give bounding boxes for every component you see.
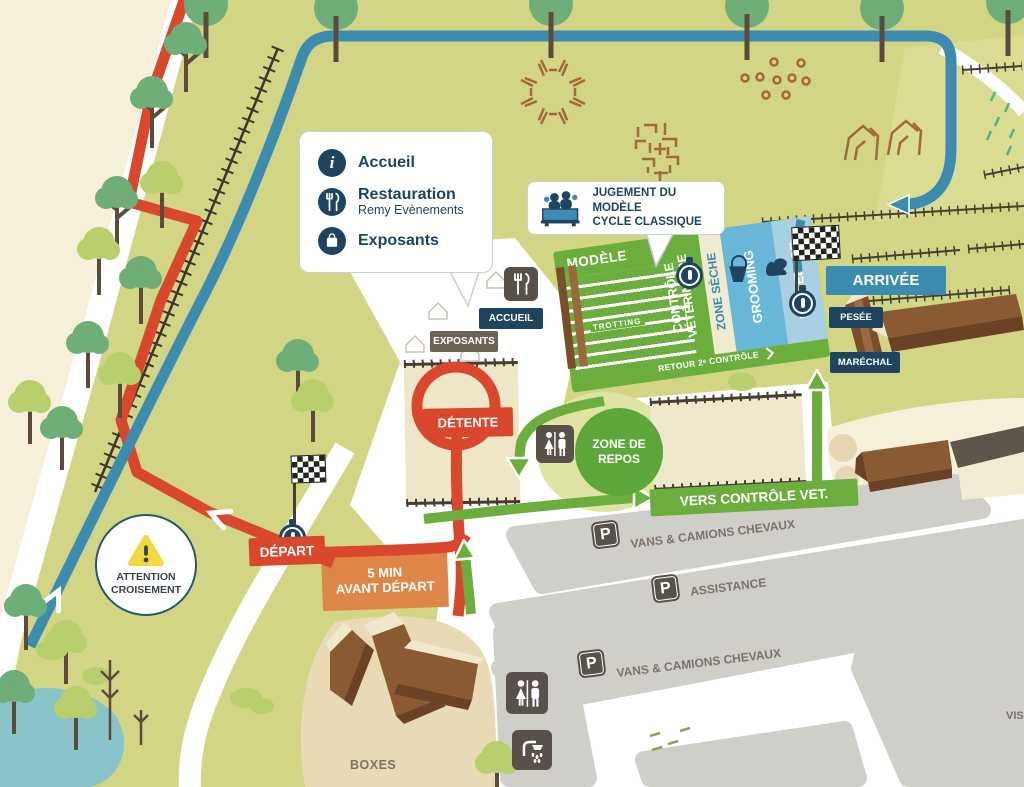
- legend-bubble: i Accueil Restauration Remy Evènements: [299, 131, 493, 273]
- arrivee-banner: ARRIVÉE: [826, 266, 946, 295]
- legend-item-exposants: Exposants: [318, 227, 492, 255]
- pesee-banner: PESÉE: [829, 307, 883, 328]
- legend-restauration-label: Restauration: [358, 187, 464, 204]
- accueil-banner: ACCUEIL: [479, 308, 543, 329]
- legend-item-accueil: i Accueil: [318, 149, 492, 177]
- parking-icon-3: P: [576, 648, 606, 678]
- detente-label: DÉTENTE: [438, 414, 499, 430]
- parking-icon-2: P: [650, 573, 680, 603]
- zone-repos-line1: ZONE DE: [592, 437, 645, 452]
- depart-banner: DÉPART: [249, 536, 326, 567]
- stable-buildings: [855, 426, 1024, 500]
- marechal-banner: MARÉCHAL: [830, 352, 900, 373]
- visiteurs-label-partial: VIS: [1006, 710, 1024, 722]
- accueil-label: ACCUEIL: [489, 313, 533, 324]
- zone-repos-line2: REPOS: [598, 452, 640, 467]
- judging-bubble-tail: [640, 230, 680, 268]
- parking-symbol: P: [585, 654, 598, 673]
- arrivee-label: ARRIVÉE: [853, 272, 920, 289]
- warning-icon: [126, 534, 166, 568]
- parking-symbol: P: [599, 525, 612, 544]
- top-trees: [184, 0, 1024, 62]
- legend-exposants-label: Exposants: [358, 232, 439, 250]
- shopping-bag-icon: [318, 227, 346, 255]
- attention-line2: CROISEMENT: [111, 584, 181, 597]
- info-icon: i: [318, 149, 346, 177]
- boxes-buildings: [326, 612, 484, 724]
- judging-line1: JUGEMENT DU MODÈLE: [592, 186, 724, 216]
- zone-repos-circle: ZONE DE REPOS: [575, 408, 663, 496]
- deco-layer: [0, 0, 1024, 787]
- marechal-label: MARÉCHAL: [838, 357, 892, 368]
- judges-icon: [538, 188, 582, 228]
- parking-symbol: P: [659, 579, 672, 598]
- boxes-label: BOXES: [350, 758, 396, 772]
- judging-line2: CYCLE CLASSIQUE: [592, 215, 724, 230]
- event-map: 5 MIN AVANT DÉPART MODÈLE TROTTING CONTR…: [0, 0, 1024, 787]
- legend-item-restauration: Restauration Remy Evènements: [318, 187, 492, 218]
- grandstand: [556, 265, 588, 369]
- cutlery-icon: [318, 188, 346, 216]
- depart-label: DÉPART: [259, 543, 314, 560]
- vers-controle-label: VERS CONTRÔLE VET.: [679, 486, 828, 509]
- shower-icon: [512, 730, 552, 770]
- pesee-label: PESÉE: [840, 312, 872, 323]
- stopwatch-icon-desselage: [789, 290, 816, 317]
- judging-bubble: JUGEMENT DU MODÈLE CYCLE CLASSIQUE: [527, 181, 725, 235]
- wc-icon-boxes: [506, 672, 548, 714]
- attention-line1: ATTENTION: [111, 571, 181, 584]
- legend-accueil-label: Accueil: [358, 154, 415, 172]
- parking-icon-1: P: [590, 519, 620, 549]
- wc-icon-repos: [536, 425, 574, 463]
- attention-croisement-badge: ATTENTION CROISEMENT: [95, 514, 197, 616]
- restaurant-tile-icon: [504, 267, 538, 301]
- detente-banner: DÉTENTE: [423, 407, 513, 438]
- exposants-label: EXPOSANTS: [433, 336, 495, 347]
- grooming-bucket-icon: [728, 263, 748, 282]
- finish-flag-icon: [791, 225, 841, 261]
- saddle-icon: [763, 255, 793, 279]
- stopwatch-icon-controle: [676, 262, 703, 289]
- legend-restauration-sublabel: Remy Evènements: [358, 203, 464, 217]
- exposants-banner: EXPOSANTS: [430, 331, 498, 352]
- start-flag-icon: [291, 454, 327, 483]
